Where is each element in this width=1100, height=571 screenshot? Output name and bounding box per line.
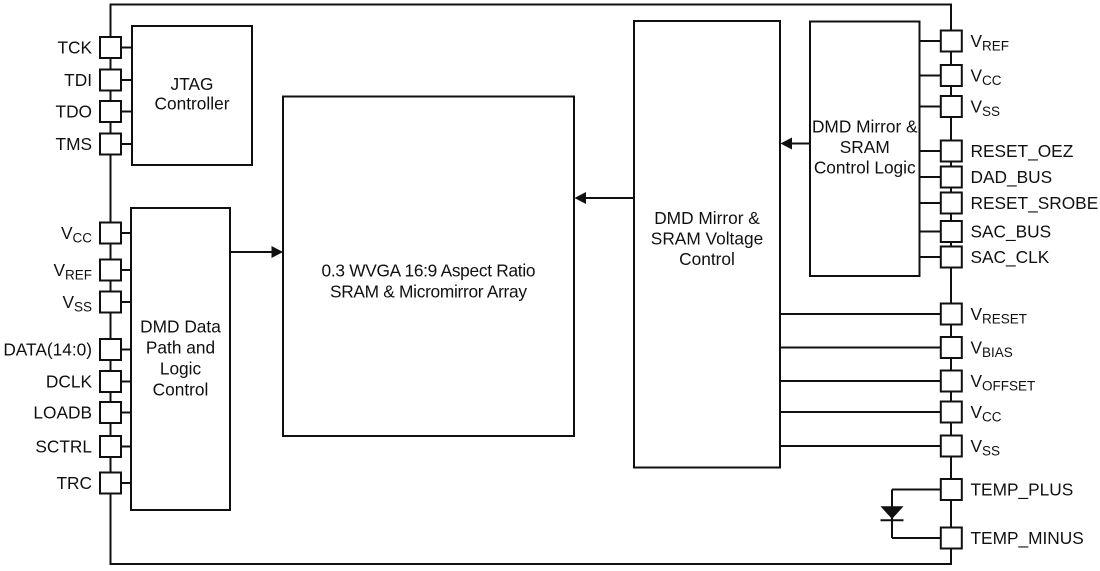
svg-text:SAC_CLK: SAC_CLK bbox=[971, 247, 1050, 267]
svg-text:LOADB: LOADB bbox=[33, 403, 92, 423]
svg-text:TDO: TDO bbox=[56, 102, 92, 122]
svg-text:RESET_SROBE: RESET_SROBE bbox=[971, 193, 1099, 213]
svg-text:DMD Mirror &: DMD Mirror & bbox=[654, 208, 760, 228]
svg-text:Control: Control bbox=[153, 380, 209, 400]
svg-text:DMD Data: DMD Data bbox=[140, 317, 221, 337]
svg-text:SCTRL: SCTRL bbox=[35, 437, 92, 457]
svg-text:Control: Control bbox=[679, 249, 735, 269]
svg-text:JTAG: JTAG bbox=[171, 74, 214, 94]
svg-text:Control Logic: Control Logic bbox=[814, 158, 916, 178]
svg-text:SRAM: SRAM bbox=[840, 137, 890, 157]
svg-text:SRAM & Micromirror Array: SRAM & Micromirror Array bbox=[330, 282, 527, 302]
svg-text:DAD_BUS: DAD_BUS bbox=[971, 167, 1053, 187]
svg-text:TDI: TDI bbox=[64, 70, 92, 90]
svg-text:SRAM Voltage: SRAM Voltage bbox=[651, 229, 763, 249]
svg-text:Logic: Logic bbox=[160, 359, 202, 379]
svg-text:RESET_OEZ: RESET_OEZ bbox=[971, 141, 1074, 161]
svg-text:TCK: TCK bbox=[57, 38, 92, 58]
svg-text:Path and: Path and bbox=[146, 338, 215, 358]
svg-text:Controller: Controller bbox=[155, 94, 230, 114]
svg-text:DCLK: DCLK bbox=[46, 372, 93, 392]
svg-text:TRC: TRC bbox=[56, 473, 92, 493]
svg-text:0.3 WVGA 16:9 Aspect Ratio: 0.3 WVGA 16:9 Aspect Ratio bbox=[322, 261, 536, 281]
svg-text:TMS: TMS bbox=[56, 134, 92, 154]
svg-text:DATA(14:0): DATA(14:0) bbox=[3, 340, 92, 360]
svg-text:DMD Mirror &: DMD Mirror & bbox=[812, 117, 918, 137]
svg-text:SAC_BUS: SAC_BUS bbox=[971, 222, 1052, 242]
svg-text:TEMP_MINUS: TEMP_MINUS bbox=[971, 528, 1084, 548]
svg-text:TEMP_PLUS: TEMP_PLUS bbox=[971, 480, 1074, 500]
